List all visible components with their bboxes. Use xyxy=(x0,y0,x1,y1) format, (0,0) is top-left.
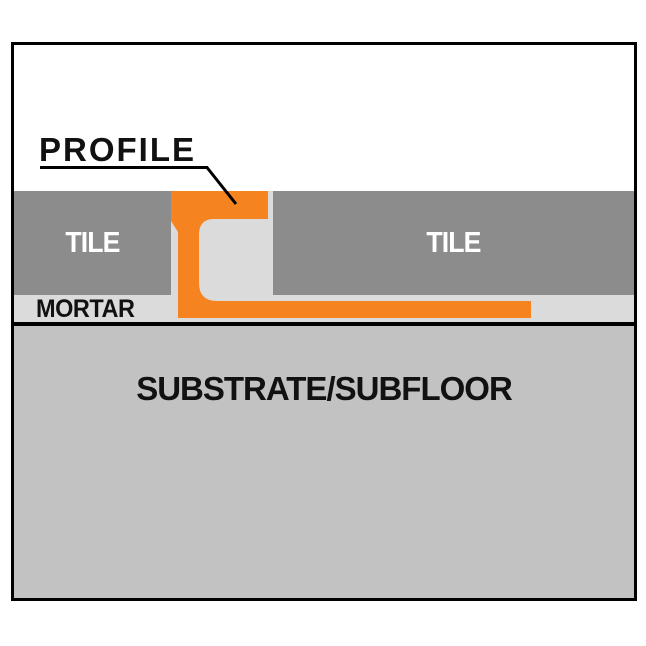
diagram-canvas: PROFILE TILE TILE MORTAR SUBSTRATE/SUBFL… xyxy=(0,0,646,646)
tile-right: TILE xyxy=(273,191,634,295)
tile-right-label: TILE xyxy=(426,229,480,258)
substrate-label: SUBSTRATE/SUBFLOOR xyxy=(14,372,634,405)
tile-left: TILE xyxy=(14,191,171,295)
substrate-area: SUBSTRATE/SUBFLOOR Schluter ® Systems xyxy=(14,326,634,598)
diagram-frame: PROFILE TILE TILE MORTAR SUBSTRATE/SUBFL… xyxy=(11,42,637,601)
tile-layer: TILE TILE xyxy=(14,191,634,295)
mortar-label: MORTAR xyxy=(36,295,135,322)
mortar-band: MORTAR xyxy=(14,295,634,322)
tile-left-label: TILE xyxy=(65,229,119,258)
joint-cavity xyxy=(171,191,273,303)
profile-callout-label: PROFILE xyxy=(39,133,196,166)
